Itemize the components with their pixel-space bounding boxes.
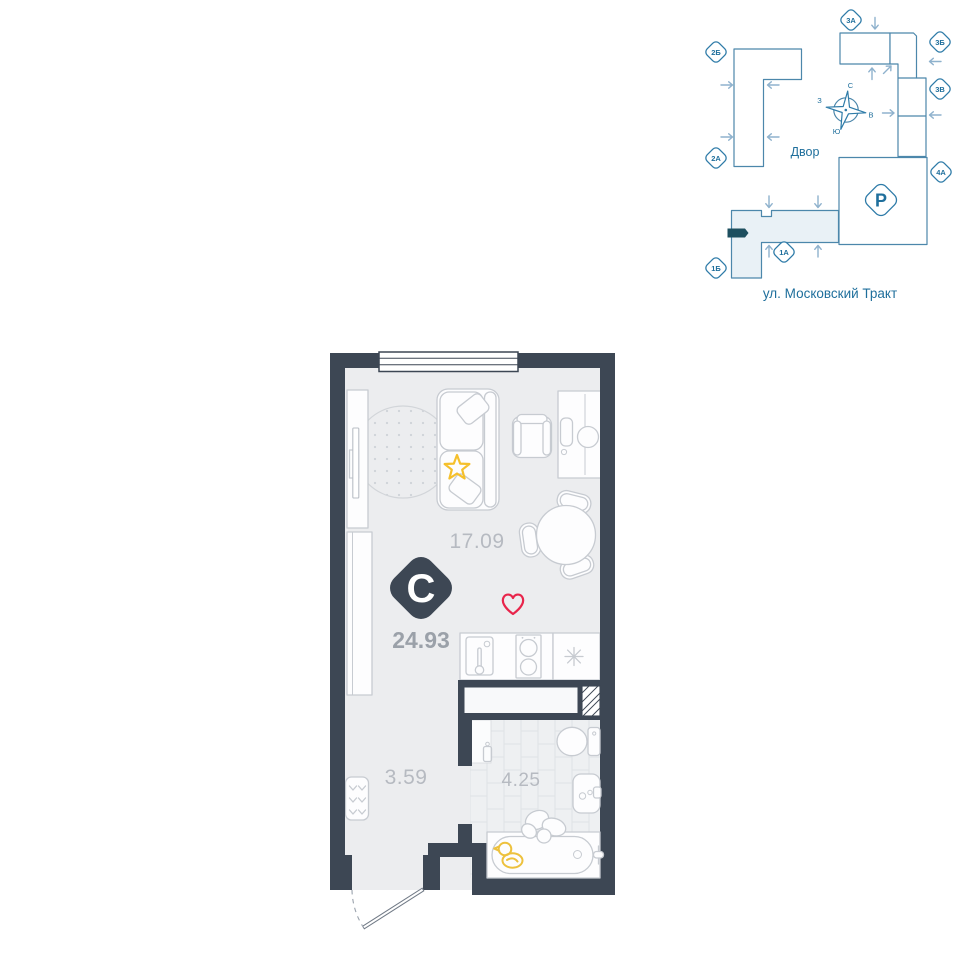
building-badge-2a: 2А — [704, 146, 728, 170]
building-3a — [840, 33, 890, 64]
desk — [558, 391, 601, 478]
building-badge-1a: 1А — [772, 240, 796, 264]
area-label-bathroom: 4.25 — [502, 770, 541, 791]
entry-door — [352, 888, 424, 929]
dining-table — [537, 506, 596, 565]
svg-text:4А: 4А — [936, 168, 946, 177]
plan-canvas: С З В Ю Р 2Б 2А 1Б 1А — [0, 0, 960, 960]
svg-text:Р: Р — [875, 191, 887, 211]
building-badge-3b: 3Б — [928, 30, 952, 54]
courtyard-label: Двор — [791, 145, 820, 159]
tv-icon — [353, 428, 359, 498]
sofa — [437, 389, 499, 510]
svg-text:С: С — [407, 567, 436, 611]
building-badge-3a: 3А — [839, 8, 863, 32]
bathroom-sink — [573, 774, 601, 813]
compass-east-label: В — [868, 111, 873, 120]
built-in-closet — [464, 687, 578, 714]
compass-west-label: З — [817, 96, 822, 105]
svg-text:3А: 3А — [846, 16, 856, 25]
building-badge-2b: 2Б — [704, 40, 728, 64]
building-badge-1b: 1Б — [704, 256, 728, 280]
building-badge-4a: 4А — [929, 160, 953, 184]
total-area-label: 24.93 — [392, 627, 450, 653]
building-badge-3v: 3В — [928, 77, 952, 101]
fridge-marker — [553, 633, 600, 680]
building-3bv — [890, 33, 926, 157]
unit-location-marker — [728, 229, 749, 238]
street-label: ул. Московский Тракт — [763, 286, 897, 301]
area-label-living: 17.09 — [449, 530, 504, 553]
armchair — [513, 415, 552, 458]
area-label-hallway: 3.59 — [385, 766, 428, 789]
compass-south-label: Ю — [833, 127, 841, 136]
wardrobe-cabinet — [347, 532, 372, 695]
tv-unit — [347, 390, 368, 528]
compass-north-label: С — [848, 81, 854, 90]
compass-icon: С З В Ю — [817, 81, 873, 136]
desk-chair — [578, 427, 599, 448]
shoe-rack — [346, 777, 369, 820]
svg-text:2Б: 2Б — [711, 48, 721, 57]
window — [379, 352, 518, 372]
svg-text:3В: 3В — [935, 85, 945, 94]
unit-plan: 17.09 3.59 4.25 С 24.93 — [330, 352, 615, 929]
svg-text:1Б: 1Б — [711, 264, 721, 273]
svg-text:2А: 2А — [711, 154, 721, 163]
kitchen-counter — [460, 633, 600, 680]
svg-text:3Б: 3Б — [935, 38, 945, 47]
laundry-niche — [470, 720, 492, 763]
site-plan: С З В Ю Р 2Б 2А 1Б 1А — [704, 8, 953, 301]
vent-shaft — [582, 686, 600, 716]
toilet — [557, 727, 600, 755]
apartment-plan-page: С З В Ю Р 2Б 2А 1Б 1А — [0, 0, 960, 960]
svg-text:1А: 1А — [779, 248, 789, 257]
